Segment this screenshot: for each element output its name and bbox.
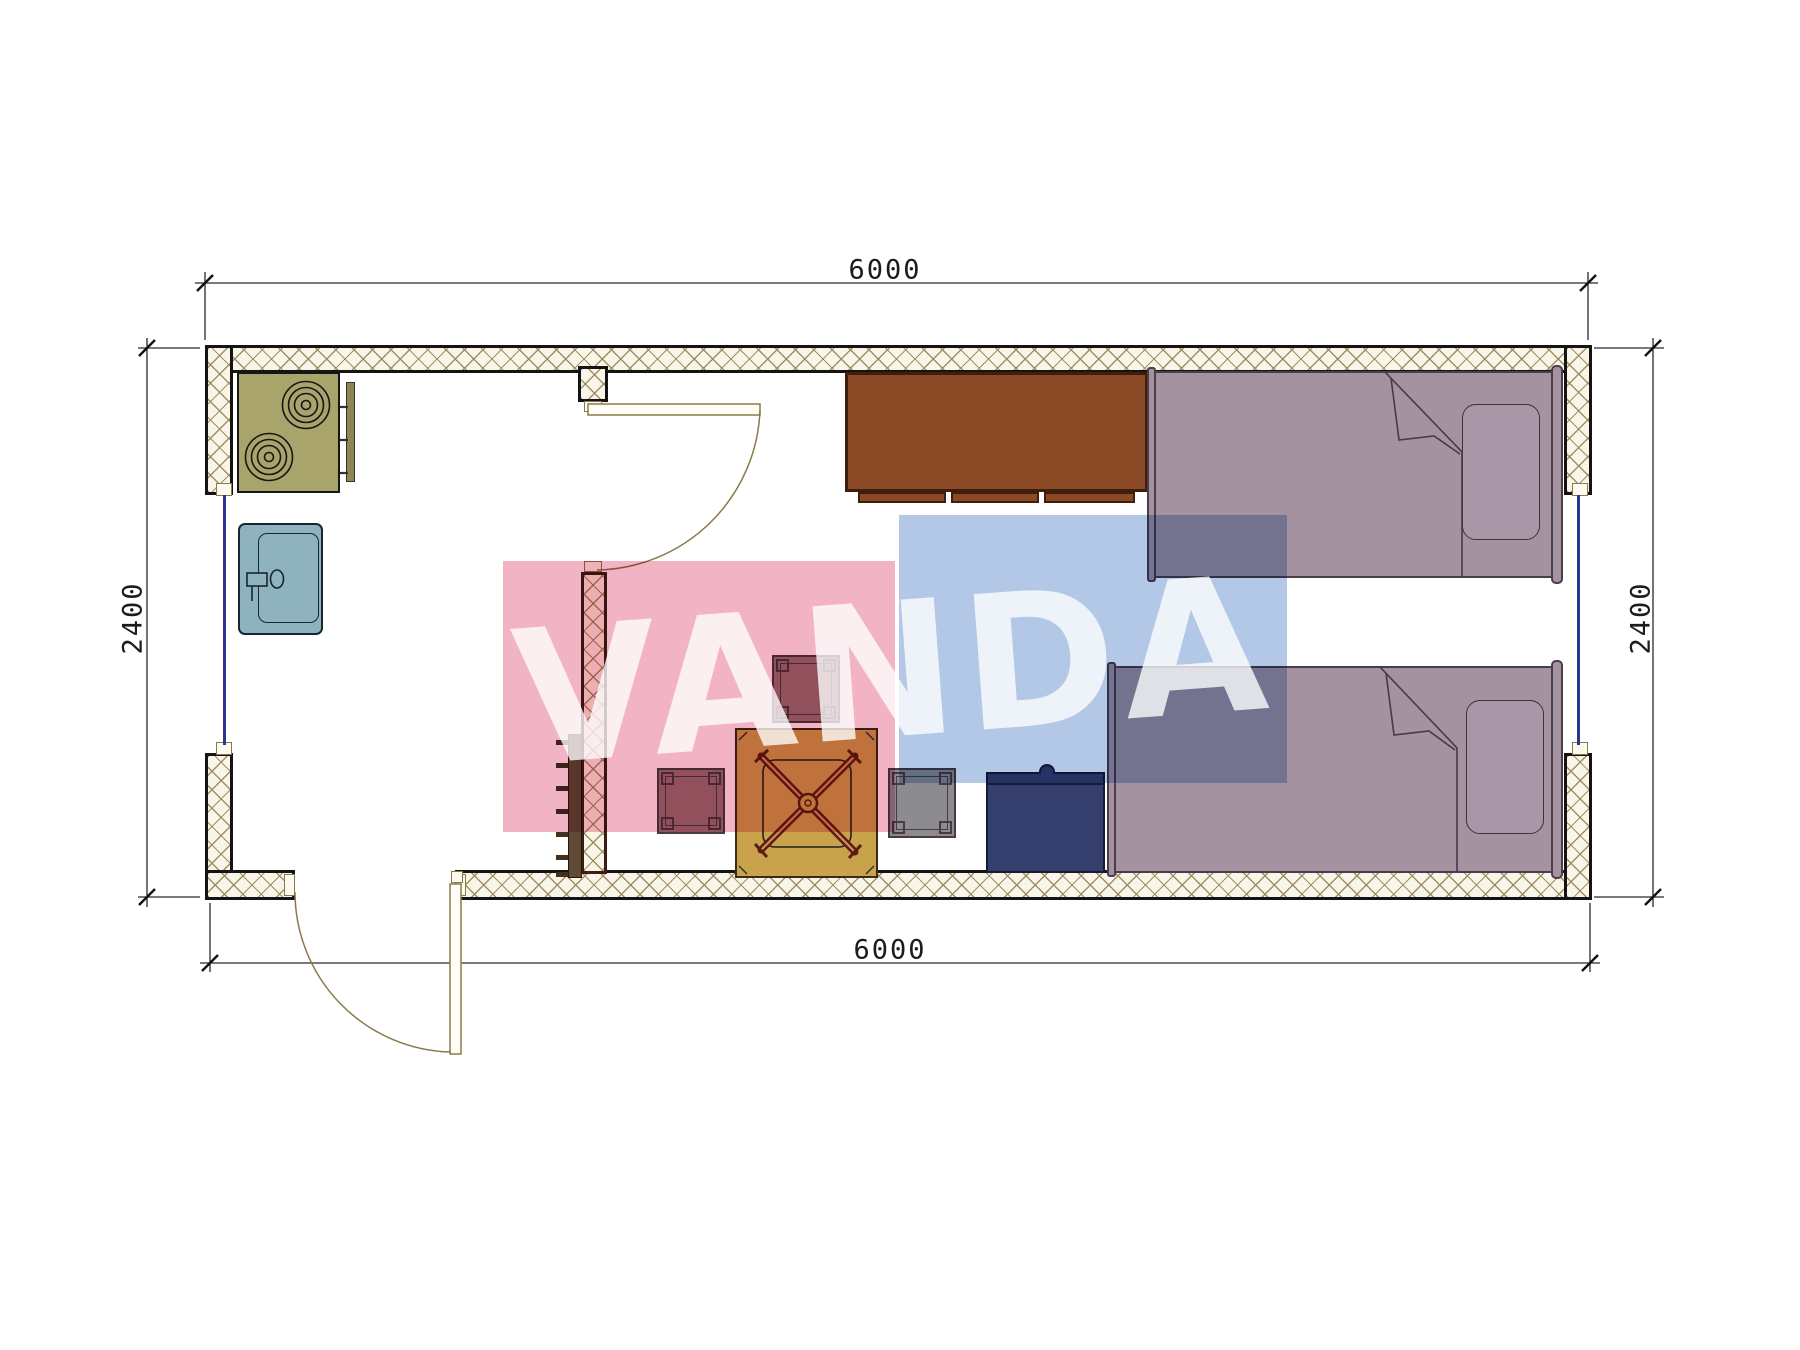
interior-door: [588, 404, 760, 570]
dim-width-bottom: 6000: [853, 935, 926, 966]
dim-width-top: 6000: [848, 255, 921, 286]
entry-door: [295, 884, 461, 1054]
dim-height-right: 2400: [1626, 581, 1657, 654]
burner-icon: [246, 382, 330, 481]
dim-height-left: 2400: [118, 581, 149, 654]
counter-ticks: [340, 407, 348, 473]
blanket-fold: [1380, 372, 1462, 872]
faucet-icon: [247, 570, 284, 601]
floor-plan-canvas: 6000 6000 2400 2400 VANDA: [0, 0, 1800, 1350]
